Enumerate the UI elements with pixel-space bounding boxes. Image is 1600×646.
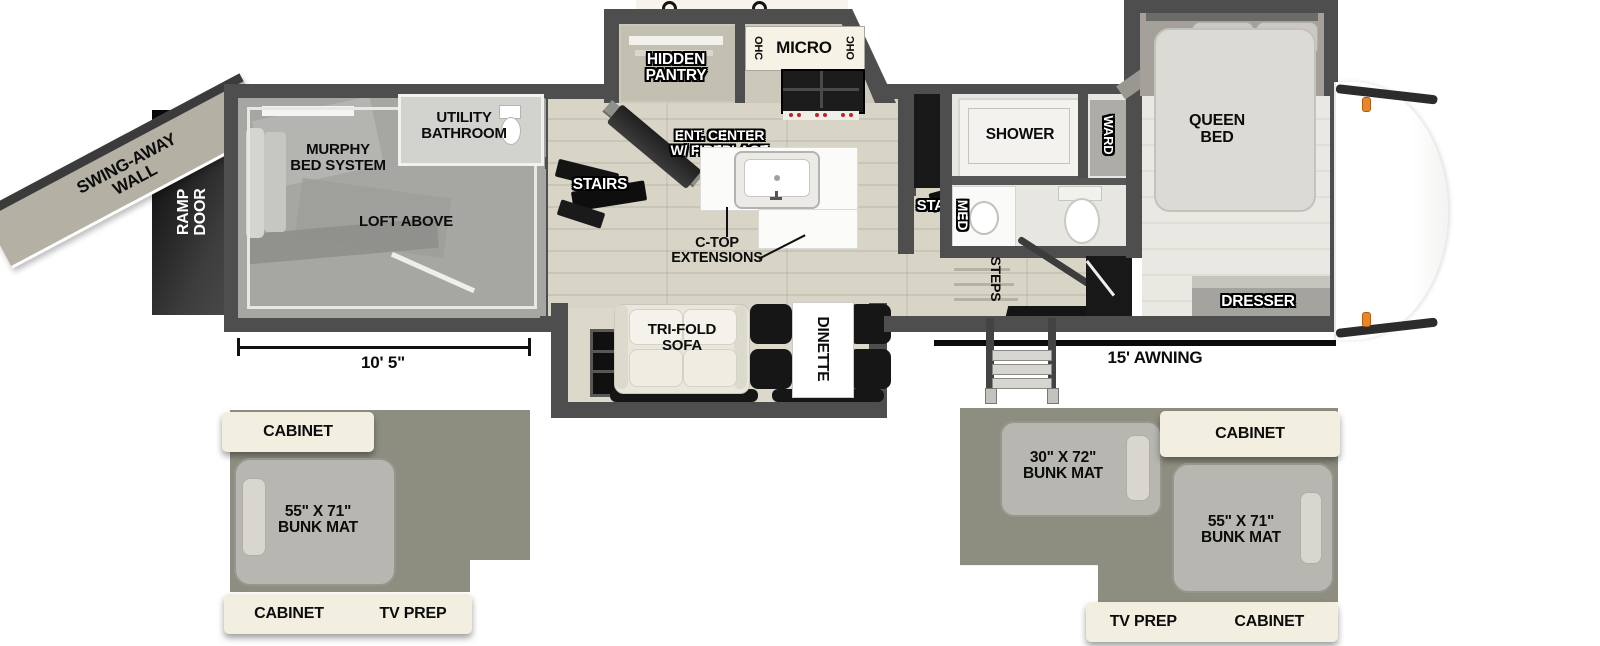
entry-step-foot xyxy=(1047,388,1059,404)
steps-label: STEPS xyxy=(985,247,1007,311)
loft-left-bunk-pillow xyxy=(242,478,266,556)
floorplan-canvas: RAMP DOOR SWING-AWAY WALL MURPHY BED SYS… xyxy=(0,0,1600,646)
stove-knob-strip xyxy=(783,111,859,120)
ward-label: WARD xyxy=(1093,113,1123,157)
loft-above-label: LOFT ABOVE xyxy=(350,211,462,233)
marker-light-icon xyxy=(1362,312,1371,327)
stove-knob xyxy=(797,113,801,117)
hidden-pantry-label: HIDDEN PANTRY xyxy=(624,44,728,92)
sink-drain xyxy=(774,175,780,181)
dimension-line xyxy=(237,346,531,349)
dinette-chair xyxy=(750,304,792,344)
entry-step-rung xyxy=(992,378,1052,389)
entry-step-rung xyxy=(992,364,1052,375)
loft-right-bunk-large-label: 55" X 71" BUNK MAT xyxy=(1186,512,1296,548)
loft-left-tv-prep-label: TV PREP xyxy=(354,606,472,623)
loft-left-cabinet-bottom-label: CABINET xyxy=(224,606,354,623)
dresser-top xyxy=(1192,276,1338,288)
door-swing-line xyxy=(1086,260,1115,297)
stove-knob xyxy=(841,113,845,117)
front-cap xyxy=(1334,82,1448,340)
micro-label: MICRO xyxy=(765,33,843,63)
sofa-slide-bottom-wall xyxy=(551,402,887,418)
tri-fold-sofa-label: TRI-FOLD SOFA xyxy=(630,320,734,356)
dinette-chair xyxy=(849,349,891,389)
sofa-armrest xyxy=(615,305,628,389)
loft-right-tv-prep-label: TV PREP xyxy=(1086,614,1201,631)
stairs-left-label: STAIRS xyxy=(560,174,640,196)
toilet-bowl-icon xyxy=(1064,198,1100,244)
stove-knob xyxy=(823,113,827,117)
faucet-icon xyxy=(775,191,778,200)
loft-left-bunk-label: 55" X 71" BUNK MAT xyxy=(266,502,370,538)
stove-knob xyxy=(789,113,793,117)
entry-step-foot xyxy=(985,388,997,404)
queen-bed-label: QUEEN BED xyxy=(1186,110,1248,150)
loft-right-bunk-large-pillow xyxy=(1300,492,1322,564)
loft-right-bunk-small-label: 30" X 72" BUNK MAT xyxy=(1008,448,1118,484)
marker-light-icon xyxy=(1362,97,1371,112)
loft-right-bunk-small-pillow xyxy=(1126,435,1150,501)
loft-left-cabinet-top-label: CABINET xyxy=(222,421,374,443)
shower-label: SHOWER xyxy=(972,124,1068,146)
ctop-callout-line xyxy=(726,207,728,237)
bedroom-doorway xyxy=(1086,256,1132,316)
awning-label: 15' AWNING xyxy=(1090,346,1220,370)
loft-right-cabinet-bottom: TV PREP CABINET xyxy=(1086,602,1338,642)
stove-grate-line xyxy=(783,88,859,91)
ward-left-wall xyxy=(1078,94,1088,178)
sink-icon xyxy=(734,151,820,209)
garage-dimension-label: 10' 5" xyxy=(338,352,428,374)
bottom-wall-stub xyxy=(540,316,562,332)
murphy-bed-label: MURPHY BED SYSTEM xyxy=(268,138,408,178)
headboard-trim xyxy=(1146,13,1318,21)
entry-step-rung xyxy=(992,350,1052,361)
dinette-label: DINETTE xyxy=(807,304,837,394)
ohc-right-label: OHC xyxy=(837,33,867,63)
loft-left-cabinet-bottom: CABINET TV PREP xyxy=(224,594,472,634)
med-label: MED xyxy=(948,198,978,232)
stove-knob xyxy=(849,113,853,117)
stove-icon xyxy=(781,69,865,114)
stove-knob xyxy=(815,113,819,117)
dresser-label: DRESSER xyxy=(1210,290,1306,314)
loft-right-cabinet-top-label: CABINET xyxy=(1160,423,1340,445)
loft-right-cabinet-bottom-label: CABINET xyxy=(1201,614,1338,631)
bedroom-left-wall xyxy=(1126,84,1142,258)
utility-bathroom-label: UTILITY BATHROOM xyxy=(405,106,523,146)
ctop-extensions-label: C-TOP EXTENSIONS xyxy=(652,234,782,268)
bottom-wall-right xyxy=(884,316,1354,332)
dinette-chair xyxy=(750,349,792,389)
